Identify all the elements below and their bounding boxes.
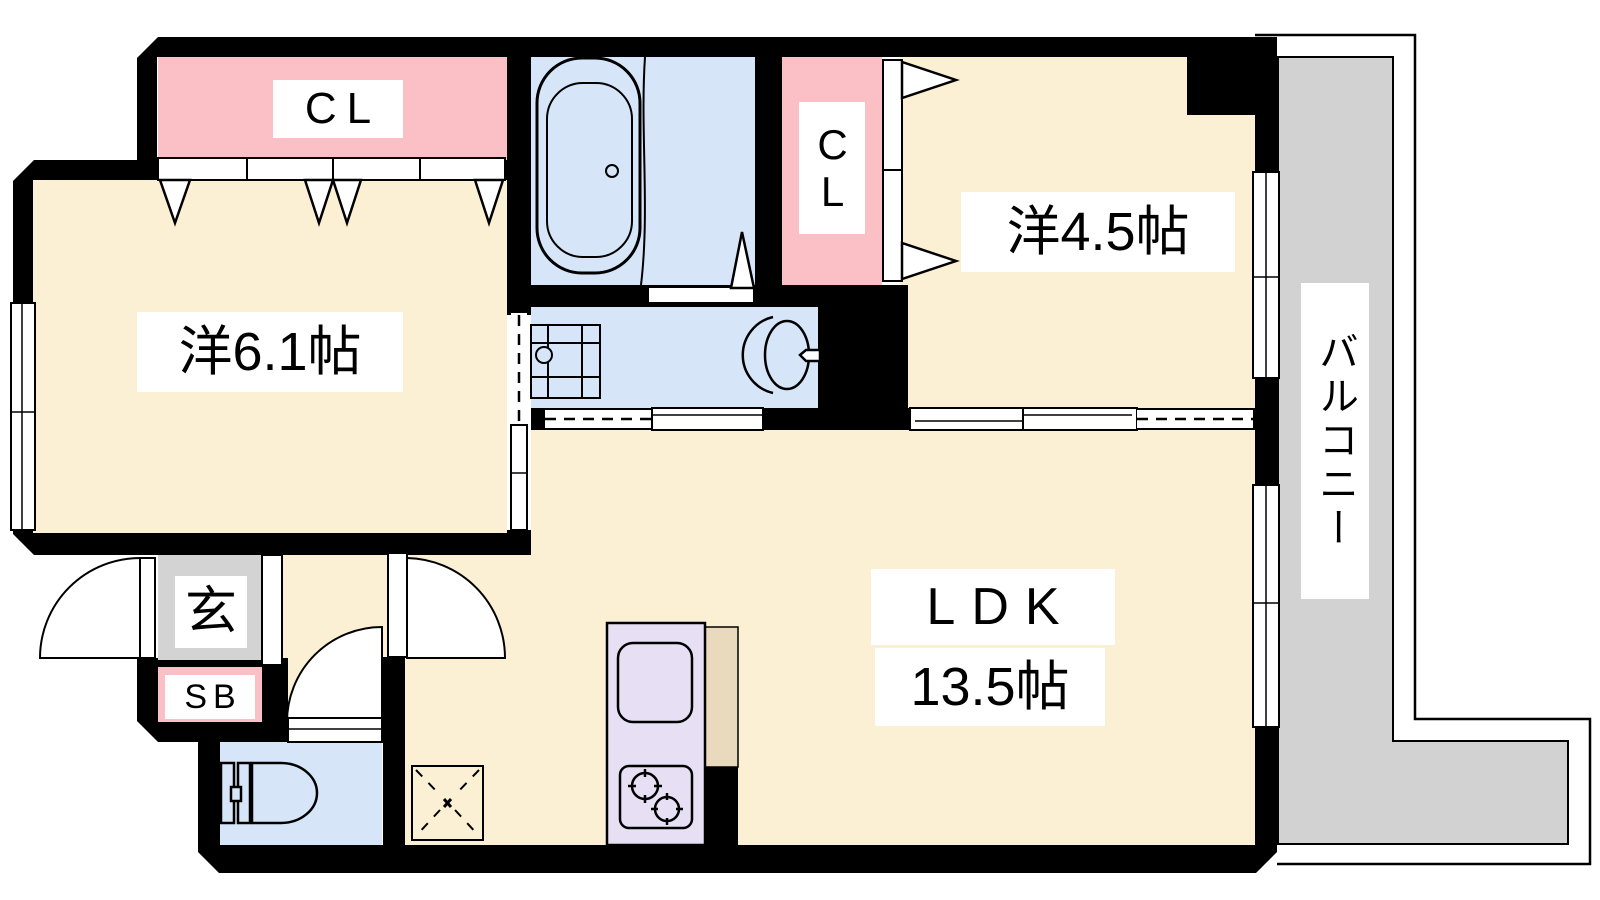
bedroom-east-label: 洋4.5帖 <box>961 192 1235 272</box>
washroom-sliding-door <box>545 408 763 430</box>
entrance-label: 玄 <box>175 576 247 648</box>
floorplan-canvas: CL CL 洋4.5帖 洋6.1帖 LDK 13.5帖 バルコニー 玄 SB <box>0 0 1600 900</box>
bedroom-west-label: 洋6.1帖 <box>137 312 403 392</box>
washroom-area <box>531 307 818 408</box>
toilet-area <box>220 742 382 845</box>
ldk-size-label: 13.5帖 <box>875 648 1105 726</box>
closet-east-label: CL <box>799 102 865 234</box>
window-west <box>11 303 35 530</box>
kitchen-pillar <box>705 767 738 845</box>
kitchen-counter <box>607 623 738 845</box>
balcony-label: バルコニー <box>1301 283 1369 599</box>
bedroom-east-sliding-door <box>910 408 1253 430</box>
closet-main-label: CL <box>273 80 403 138</box>
bedroom-west-sliding-door <box>511 313 527 530</box>
ldk-name-label: LDK <box>871 569 1115 645</box>
window-east-bedroom <box>1253 172 1279 378</box>
window-ldk <box>1253 485 1279 727</box>
counter-shadow <box>705 627 738 767</box>
shoebox-label: SB <box>165 675 255 719</box>
